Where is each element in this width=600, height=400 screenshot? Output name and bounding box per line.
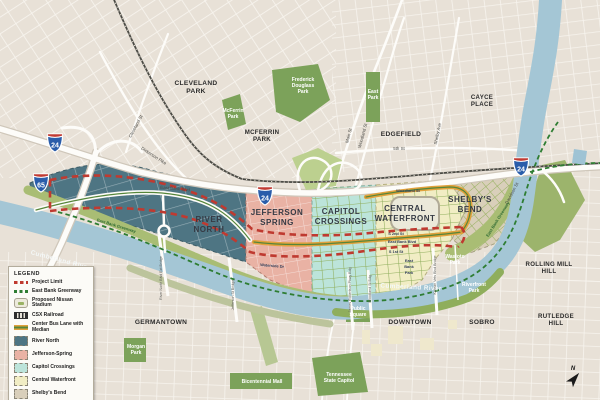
label-korean-vets-bridge: Korean Vets Blvd Bridge <box>433 256 437 295</box>
legend-item-label: River North <box>32 339 59 345</box>
label-jefferson-st-bridge: Jefferson St Bridge <box>231 280 235 311</box>
label-river-north-2: NORTH <box>194 225 225 234</box>
legend-item-central-waterfront: Central Waterfront <box>14 376 88 386</box>
label-rutledge-hill-1: RUTLEDGE <box>538 313 574 320</box>
jefferson-spring-swatch <box>14 350 28 360</box>
label-east-bank-park-2: Bank <box>404 264 414 269</box>
label-shelbys-bend-1: SHELBY'S <box>448 195 492 204</box>
label-river-north-blvd-bridge: River North Blvd Ext Bridge <box>159 256 163 300</box>
legend-item-greenway: East Bank Greenway <box>14 289 88 295</box>
label-river-north-1: RIVER <box>196 215 223 224</box>
label-central-waterfront-1: CENTRAL <box>384 204 426 213</box>
bus-lane-swatch <box>14 325 28 330</box>
i24-shield-label: 24 <box>51 143 59 150</box>
label-jefferson-spring-1: JEFFERSON <box>251 208 304 217</box>
i24-shield-label: 24 <box>517 167 525 174</box>
label-woodland-st-transit: Woodland St <box>396 188 420 193</box>
label-edgefield: EDGEFIELD <box>381 131 421 138</box>
legend-item-label: Central Waterfront <box>32 378 76 384</box>
legend-item-river-north: River North <box>14 336 88 346</box>
label-riverfront-park-2: Park <box>469 288 480 294</box>
label-cayce-place-2: PLACE <box>471 101 493 108</box>
legend-item-jefferson-spring: Jefferson-Spring <box>14 350 88 360</box>
legend-item-label: Shelby's Bend <box>32 391 66 397</box>
label-east-park-2: Park <box>368 95 379 101</box>
river-north-swatch <box>14 336 28 346</box>
label-5th-st: 5th St <box>393 146 405 151</box>
i65-shield-label: 65 <box>37 183 45 190</box>
east-bank-plan-map: 24 65 24 24 N CLEVELAND PARK MCFERRIN PA… <box>0 0 600 400</box>
label-cleveland-park-1: CLEVELAND <box>175 80 218 87</box>
label-frederick-douglass-3: Park <box>298 89 309 95</box>
label-bicentennial-mall: Bicentennial Mall <box>242 379 283 385</box>
legend-item-label: East Bank Greenway <box>32 289 81 295</box>
capitol-crossings-swatch <box>14 363 28 373</box>
project-limit-swatch <box>14 281 28 284</box>
legend-item-label: Proposed Nissan Stadium <box>32 298 88 310</box>
greenway-swatch <box>14 290 28 293</box>
legend: LEGEND Project Limit East Bank Greenway … <box>8 266 94 400</box>
legend-item-label: CSX Railroad <box>32 313 64 319</box>
label-wasioto-park-2: Park <box>450 260 461 266</box>
label-rolling-mill-hill-2: HILL <box>542 268 557 275</box>
label-tn-capitol-2: State Capitol <box>324 378 355 384</box>
label-downtown: DOWNTOWN <box>388 319 431 326</box>
central-waterfront-swatch <box>14 376 28 386</box>
label-mcferrin-park-2: PARK <box>253 136 271 143</box>
legend-title: LEGEND <box>14 271 88 277</box>
label-public-square-2: Square <box>350 312 367 318</box>
label-morgan-park-2: Park <box>131 350 142 356</box>
label-east-bank-park-3: Park <box>405 270 414 275</box>
label-capitol-crossings-1: CAPITOL <box>322 207 360 216</box>
legend-item-bus-lane: Center Bus Lane with Median <box>14 322 88 334</box>
legend-item-project-limit: Project Limit <box>14 280 88 286</box>
label-central-waterfront-2: WATERFRONT <box>375 214 436 223</box>
label-capitol-crossings-2: CROSSINGS <box>315 217 368 226</box>
label-mcferrin-park-green-2: Park <box>228 114 239 120</box>
label-s-2nd-st: S 2nd St <box>388 231 404 236</box>
legend-item-shelbys-bend: Shelby's Bend <box>14 389 88 399</box>
label-james-robertson-bridge: James Robertson Pkwy Bdg <box>348 267 352 312</box>
blue-parcel <box>572 149 587 165</box>
label-mcferrin-park-1: MCFERRIN <box>245 129 280 136</box>
label-jefferson-spring-2: SPRING <box>260 218 294 227</box>
legend-item-csx: CSX Railroad <box>14 312 88 319</box>
label-cleveland-park-2: PARK <box>186 88 205 95</box>
label-rutledge-hill-2: HILL <box>549 320 564 327</box>
shelbys-bend-swatch <box>14 389 28 399</box>
label-cayce-place-1: CAYCE <box>471 94 493 101</box>
legend-item-capitol-crossings: Capitol Crossings <box>14 363 88 373</box>
railroad-swatch <box>14 312 28 319</box>
stadium-swatch <box>14 298 28 308</box>
label-east-bank-park-1: East <box>405 258 414 263</box>
label-s-1st-st: S 1st St <box>389 249 404 254</box>
legend-item-label: Capitol Crossings <box>32 365 75 371</box>
legend-item-stadium: Proposed Nissan Stadium <box>14 298 88 310</box>
label-rolling-mill-hill-1: ROLLING MILL <box>526 261 573 268</box>
label-germantown: GERMANTOWN <box>135 319 187 326</box>
legend-item-label: Center Bus Lane with Median <box>32 322 88 334</box>
label-sobro: SOBRO <box>469 319 495 326</box>
label-east-bank-blvd-cw: East Bank Blvd <box>388 239 417 244</box>
label-shelbys-bend-2: BEND <box>458 205 483 214</box>
north-arrow-label: N <box>571 366 576 372</box>
legend-item-label: Jefferson-Spring <box>32 352 72 358</box>
i24-shield-label: 24 <box>261 196 269 203</box>
label-woodland-st-bridge: Woodland St Bdg <box>368 275 372 303</box>
legend-item-label: Project Limit <box>32 280 62 286</box>
